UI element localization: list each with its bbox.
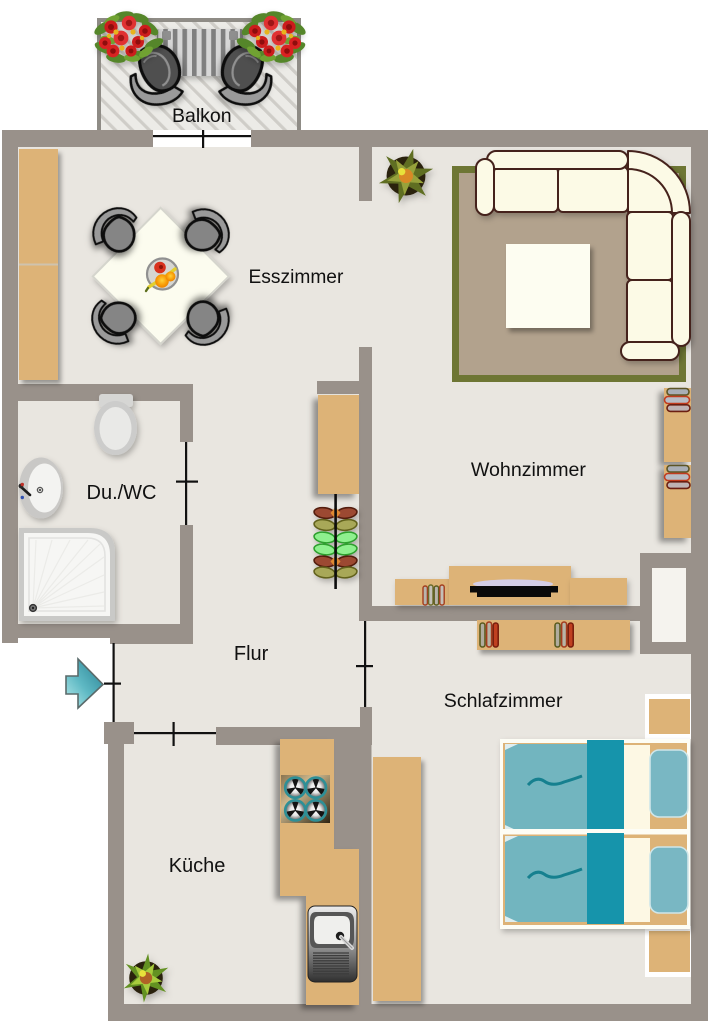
svg-text:Du./WC: Du./WC (87, 482, 157, 504)
svg-text:Wohnzimmer: Wohnzimmer (471, 459, 587, 481)
svg-text:Balkon: Balkon (172, 105, 232, 127)
svg-text:Flur: Flur (234, 643, 269, 665)
svg-text:Esszimmer: Esszimmer (249, 267, 344, 288)
svg-text:Schlafzimmer: Schlafzimmer (444, 690, 563, 712)
svg-text:Küche: Küche (169, 855, 226, 877)
